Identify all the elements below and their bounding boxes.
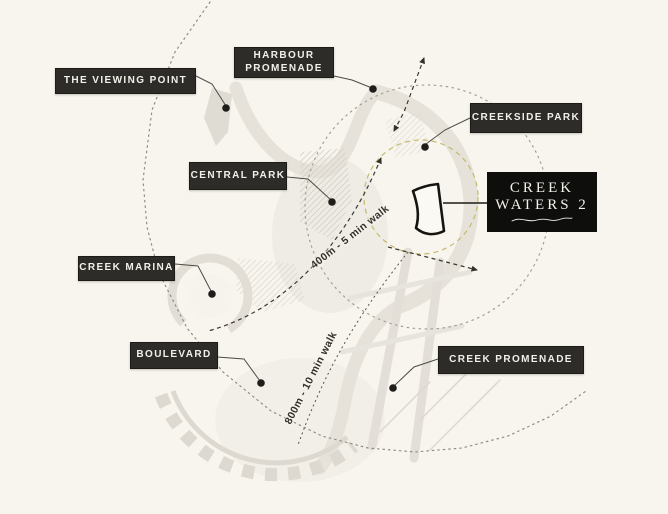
site-name-box: CREEK WATERS 2 [487, 172, 597, 232]
location-map: THE VIEWING POINT HARBOUR PROMENADE CREE… [0, 0, 668, 514]
label-creek-marina: CREEK MARINA [78, 256, 175, 281]
label-harbour-promenade: HARBOUR PROMENADE [234, 47, 334, 78]
label-creekside-park: CREEKSIDE PARK [470, 103, 582, 133]
district-ground [215, 358, 385, 482]
label-the-viewing-point: THE VIEWING POINT [55, 68, 196, 94]
label-central-park: CENTRAL PARK [189, 162, 287, 190]
label-creek-promenade: CREEK PROMENADE [438, 346, 584, 374]
dot-boulevard [257, 379, 265, 387]
dot-creek-marina [208, 290, 216, 298]
dot-creek-promenade [389, 384, 397, 392]
dot-central-park [328, 198, 336, 206]
site-name-line2: WATERS 2 [495, 197, 589, 214]
dot-the-viewing-point [222, 104, 230, 112]
dot-harbour-promenade [369, 85, 377, 93]
site-name-line1: CREEK [510, 180, 574, 197]
wave-flourish-icon [510, 216, 574, 224]
label-boulevard: BOULEVARD [130, 342, 218, 369]
dot-creekside-park [421, 143, 429, 151]
site-plot-outline [413, 184, 444, 234]
headland-shape [204, 88, 232, 146]
